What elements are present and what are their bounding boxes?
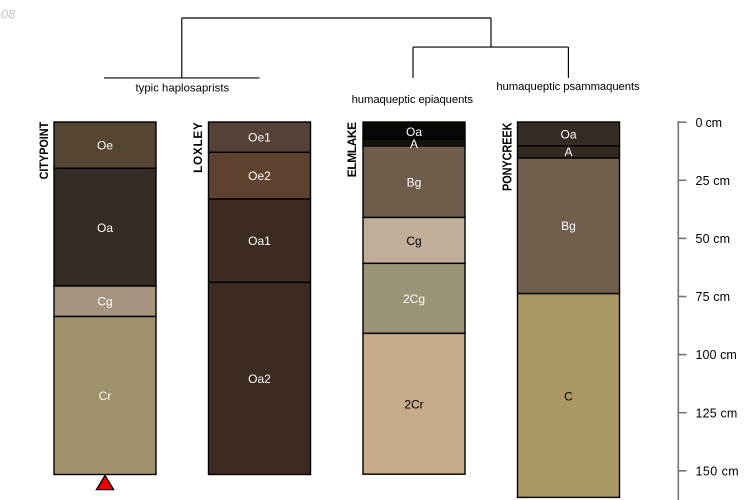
svg-text:50 cm: 50 cm xyxy=(696,232,731,246)
svg-text:150 cm: 150 cm xyxy=(696,464,739,478)
svg-text:Bg: Bg xyxy=(561,219,576,233)
svg-text:humaqueptic psammaquents: humaqueptic psammaquents xyxy=(496,81,640,93)
svg-text:0 cm: 0 cm xyxy=(696,116,723,130)
svg-text:Bg: Bg xyxy=(407,175,422,189)
svg-text:Cg: Cg xyxy=(97,295,112,309)
svg-text:Cg: Cg xyxy=(406,234,421,248)
svg-text:typic haplosaprists: typic haplosaprists xyxy=(135,82,229,94)
svg-text:Oe: Oe xyxy=(97,139,113,153)
svg-text:2Cg: 2Cg xyxy=(403,292,425,306)
svg-text:Oe1: Oe1 xyxy=(248,131,271,145)
svg-text:LOXLEY: LOXLEY xyxy=(191,122,205,173)
svg-text:100 cm: 100 cm xyxy=(696,348,737,362)
svg-text:75 cm: 75 cm xyxy=(696,290,731,304)
svg-text:Oa: Oa xyxy=(97,221,113,235)
svg-text:Oe2: Oe2 xyxy=(248,169,271,183)
svg-text:ELMLAKE: ELMLAKE xyxy=(345,122,359,177)
svg-text:2Cr: 2Cr xyxy=(404,397,423,411)
svg-text:humaqueptic epiaquents: humaqueptic epiaquents xyxy=(352,94,474,106)
svg-text:Oa: Oa xyxy=(560,127,576,141)
svg-text:Cr: Cr xyxy=(99,389,112,403)
svg-text:Oa1: Oa1 xyxy=(248,234,271,248)
svg-text:125 cm: 125 cm xyxy=(696,406,738,420)
svg-text:-08: -08 xyxy=(0,7,15,21)
svg-text:Oa2: Oa2 xyxy=(248,372,271,386)
svg-text:C: C xyxy=(564,389,573,403)
svg-text:CITYPOINT: CITYPOINT xyxy=(37,121,51,179)
svg-text:A: A xyxy=(564,145,572,159)
svg-text:PONYCREEK: PONYCREEK xyxy=(500,123,514,191)
svg-text:25 cm: 25 cm xyxy=(696,174,731,188)
svg-text:A: A xyxy=(410,137,418,151)
